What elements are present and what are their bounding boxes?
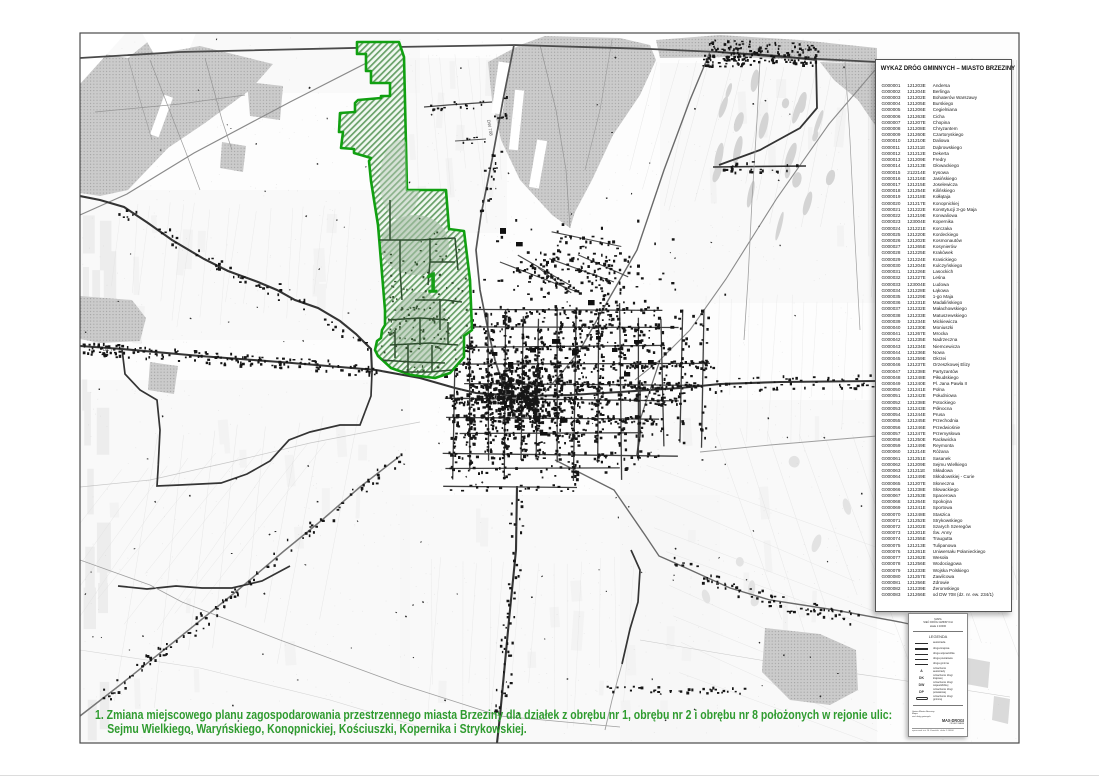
- svg-text:DK 72: DK 72: [103, 347, 116, 352]
